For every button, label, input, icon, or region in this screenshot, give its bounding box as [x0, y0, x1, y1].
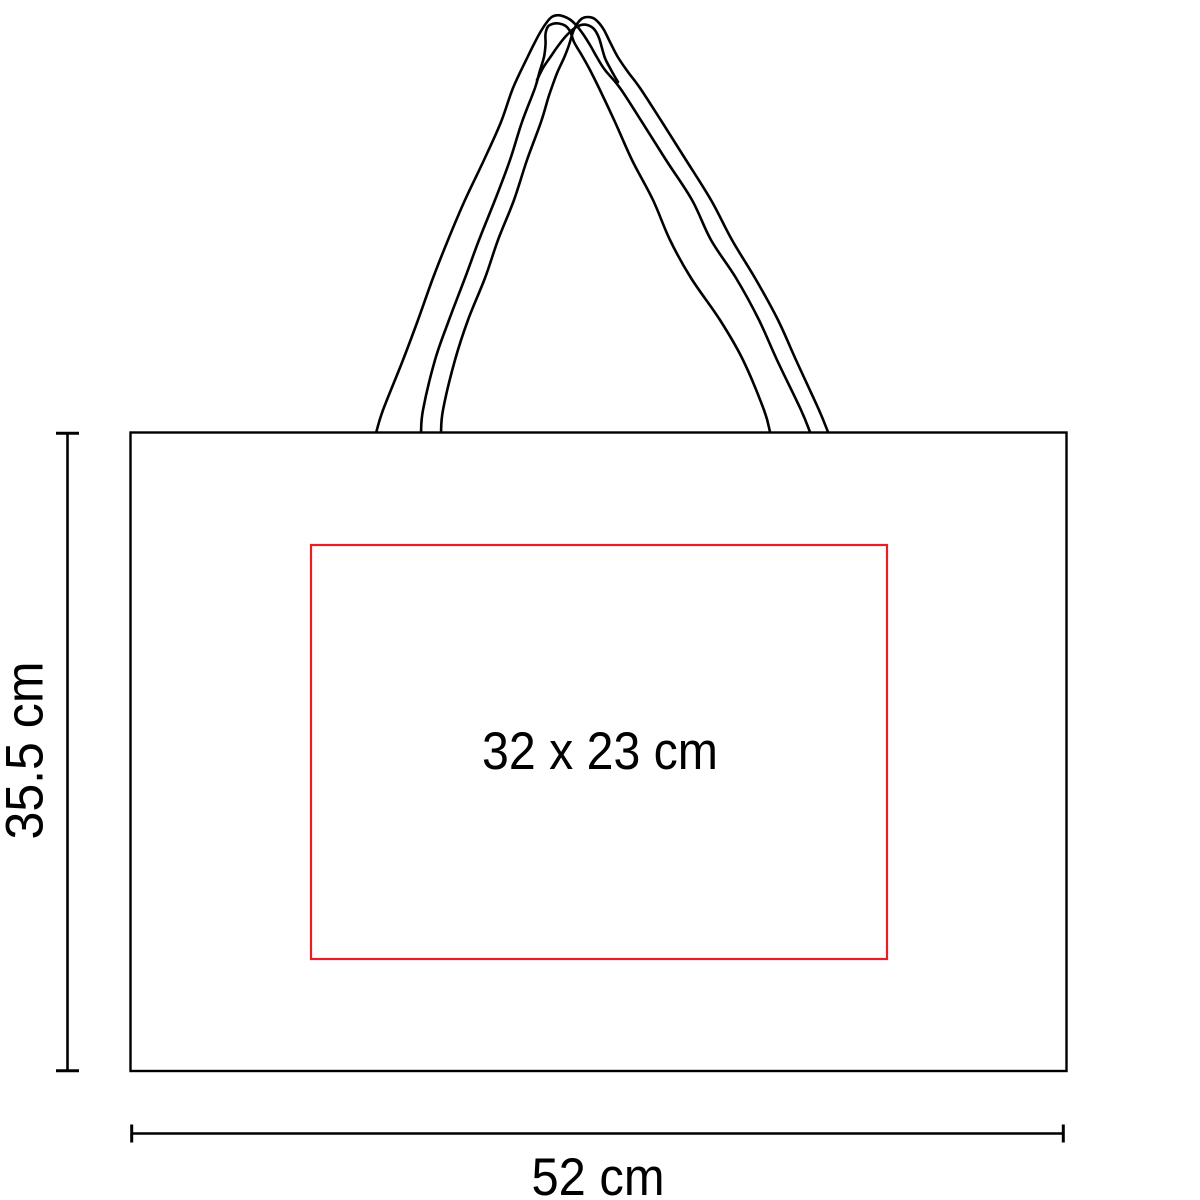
- svg-text:52 cm: 52 cm: [532, 1148, 665, 1200]
- svg-text:35.5 cm: 35.5 cm: [0, 662, 55, 840]
- svg-text:32 x 23 cm: 32 x 23 cm: [482, 722, 718, 781]
